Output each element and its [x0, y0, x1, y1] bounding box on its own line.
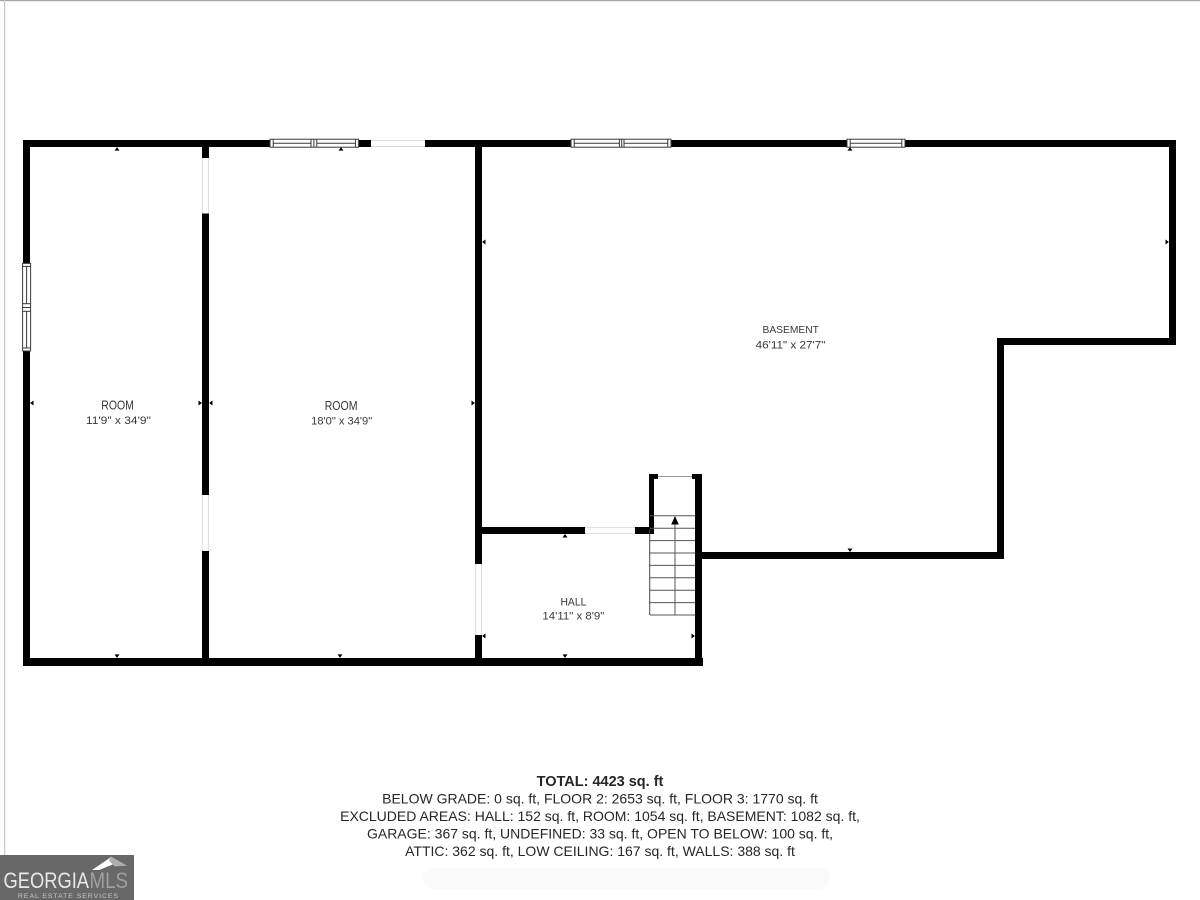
- svg-text:14'11" x 8'9": 14'11" x 8'9": [542, 610, 604, 622]
- svg-text:ROOM: ROOM: [325, 398, 358, 413]
- svg-text:EXCLUDED AREAS: HALL: 152 sq.: EXCLUDED AREAS: HALL: 152 sq. ft, ROOM: …: [340, 808, 860, 824]
- svg-text:ROOM: ROOM: [101, 398, 134, 413]
- svg-text:MLS: MLS: [90, 868, 129, 893]
- svg-text:GEORGIA: GEORGIA: [4, 868, 90, 893]
- svg-text:46'11" x 27'7": 46'11" x 27'7": [756, 340, 826, 352]
- svg-text:HALL: HALL: [560, 596, 586, 608]
- svg-text:TOTAL: 4423 sq. ft: TOTAL: 4423 sq. ft: [537, 774, 664, 790]
- svg-text:GARAGE: 367 sq. ft, UNDEFINED:: GARAGE: 367 sq. ft, UNDEFINED: 33 sq. ft…: [367, 826, 833, 842]
- svg-text:ATTIC: 362 sq. ft, LOW CEILING: ATTIC: 362 sq. ft, LOW CEILING: 167 sq. …: [405, 843, 795, 859]
- svg-text:REAL ESTATE SERVICES: REAL ESTATE SERVICES: [18, 893, 118, 900]
- svg-text:BELOW GRADE: 0 sq. ft, FLOOR 2: BELOW GRADE: 0 sq. ft, FLOOR 2: 2653 sq.…: [382, 791, 818, 807]
- svg-text:BASEMENT: BASEMENT: [763, 325, 819, 336]
- svg-text:11'9" x 34'9": 11'9" x 34'9": [86, 415, 151, 427]
- svg-text:18'0" x 34'9": 18'0" x 34'9": [311, 415, 372, 427]
